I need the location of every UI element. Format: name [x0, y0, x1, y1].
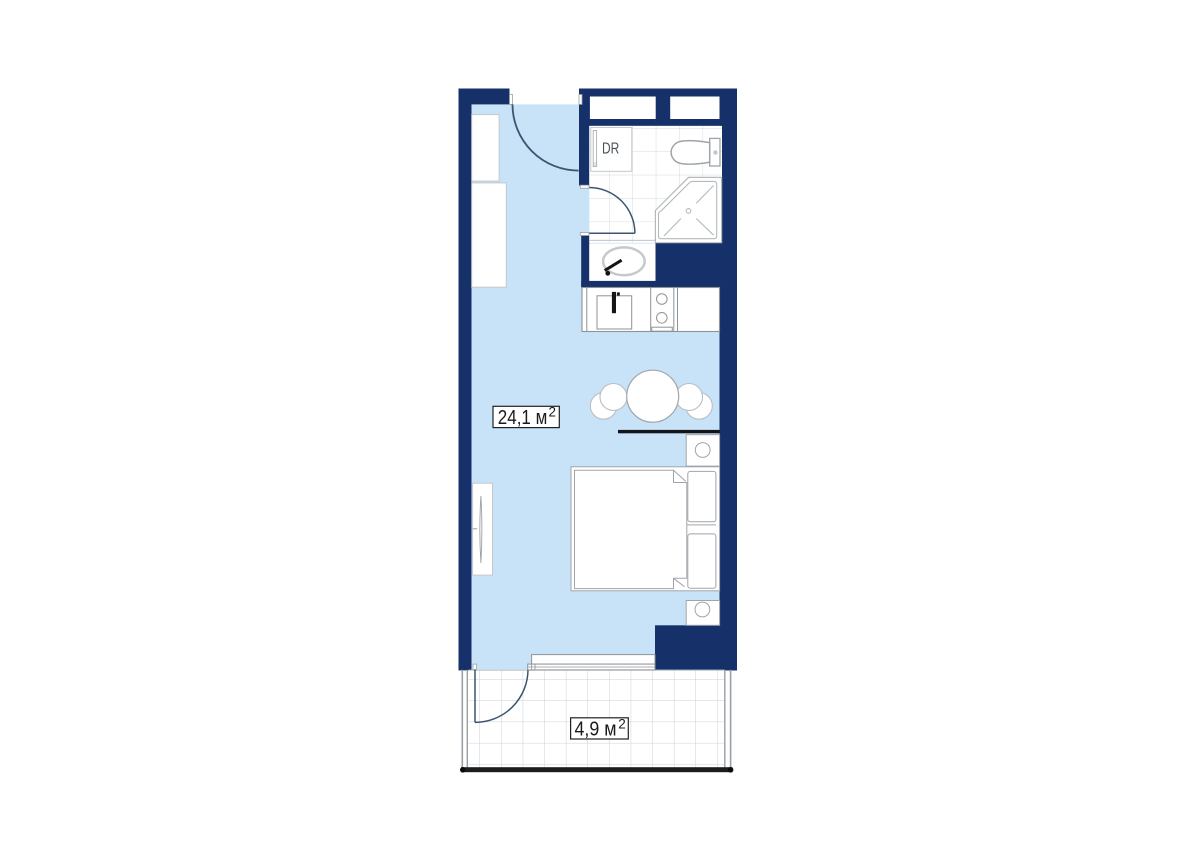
svg-text:4,9 м: 4,9 м [575, 718, 617, 740]
svg-text:DR: DR [602, 140, 619, 157]
svg-text:2: 2 [618, 717, 626, 732]
svg-text:24,1 м: 24,1 м [498, 407, 548, 429]
svg-text:2: 2 [549, 405, 557, 420]
